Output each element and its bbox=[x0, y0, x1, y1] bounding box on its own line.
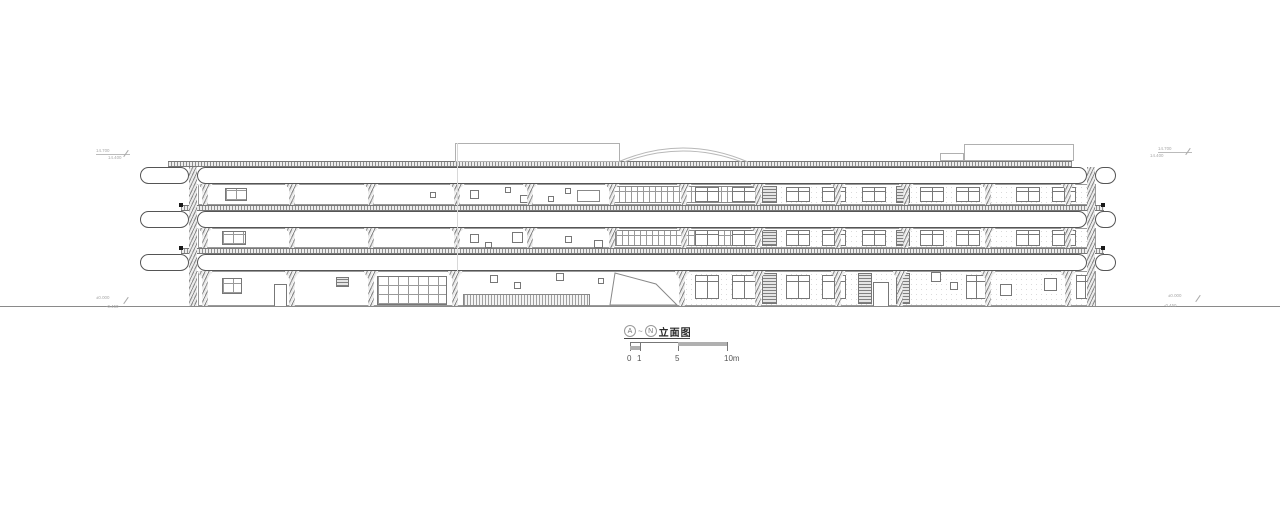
square-window bbox=[470, 234, 479, 243]
window bbox=[786, 275, 810, 299]
square-window bbox=[505, 187, 511, 193]
window bbox=[822, 187, 846, 202]
square-window bbox=[565, 236, 572, 243]
window bbox=[1052, 230, 1076, 246]
square-window bbox=[1044, 278, 1057, 291]
slide-structure bbox=[610, 272, 678, 306]
grid-window bbox=[222, 278, 242, 294]
grid-window bbox=[225, 188, 247, 201]
square-window bbox=[514, 282, 521, 289]
window bbox=[920, 187, 944, 202]
window bbox=[862, 187, 886, 202]
square-window bbox=[548, 196, 554, 202]
scale-bar-label: 0 bbox=[627, 354, 631, 363]
scale-bar-label: 1 bbox=[637, 354, 641, 363]
elevation-drawing-canvas: A ~ N 立面图 14.70014.40014.70014.400±0.000… bbox=[0, 0, 1280, 512]
level-marker-value: 14.700 bbox=[96, 148, 109, 153]
window bbox=[695, 230, 719, 246]
louver-panel bbox=[762, 230, 777, 246]
grid-bubble-n: N bbox=[645, 325, 657, 337]
square-window bbox=[931, 272, 941, 282]
louver-panel bbox=[762, 186, 777, 203]
window bbox=[822, 230, 846, 246]
level-marker-value: 14.400 bbox=[1150, 153, 1163, 158]
floor-band-1 bbox=[140, 211, 189, 228]
louver-fence bbox=[463, 294, 590, 306]
rooftop-box-right-step bbox=[940, 153, 964, 161]
floor-band-1 bbox=[1095, 211, 1116, 228]
slab-end-dot bbox=[1101, 203, 1105, 207]
square-window bbox=[950, 282, 958, 290]
drawing-title: 立面图 bbox=[659, 324, 692, 339]
grid-bubble-a: A bbox=[624, 325, 636, 337]
square-window bbox=[594, 240, 603, 248]
level-marker-value: -0.450 bbox=[106, 304, 118, 309]
window bbox=[956, 187, 980, 202]
floor-band-2 bbox=[1095, 254, 1116, 271]
window bbox=[1052, 187, 1076, 202]
window bbox=[1016, 230, 1040, 246]
level-marker-value: -0.450 bbox=[1164, 303, 1176, 308]
square-window bbox=[512, 232, 523, 243]
scale-bar-tick bbox=[727, 342, 728, 351]
grid-window bbox=[222, 231, 246, 245]
scale-bar-fill bbox=[630, 346, 640, 350]
window bbox=[786, 230, 810, 246]
square-window bbox=[430, 192, 436, 198]
square-window bbox=[1000, 284, 1012, 296]
scale-bar-label: 5 bbox=[675, 354, 679, 363]
louver-panel bbox=[858, 273, 872, 304]
joint-line bbox=[457, 143, 458, 272]
level-marker-value: ±0.000 bbox=[96, 295, 109, 300]
window bbox=[956, 230, 980, 246]
drawing-title-block: A ~ N 立面图 bbox=[624, 324, 692, 338]
louver-panel bbox=[762, 273, 777, 304]
slab-end-dot bbox=[1101, 246, 1105, 250]
level-marker-tick bbox=[123, 297, 128, 304]
window bbox=[966, 275, 986, 299]
level-marker-value: 14.400 bbox=[108, 155, 121, 160]
level-marker-value: ±0.000 bbox=[1168, 293, 1181, 298]
rooftop-box-right bbox=[964, 144, 1074, 161]
floor-band-0 bbox=[1095, 167, 1116, 184]
window bbox=[862, 230, 886, 246]
floor-band-2 bbox=[140, 254, 189, 271]
grid-window bbox=[377, 276, 447, 305]
scale-bar-label: 10m bbox=[724, 354, 740, 363]
window bbox=[695, 187, 719, 202]
square-window bbox=[598, 278, 604, 284]
scale-bar-fill bbox=[678, 342, 727, 346]
square-window bbox=[490, 275, 498, 283]
edge-column bbox=[1087, 167, 1095, 306]
slab-end-dot bbox=[179, 246, 183, 250]
title-underline bbox=[624, 338, 690, 339]
wall-opening bbox=[577, 190, 600, 202]
level-marker-tick bbox=[1195, 295, 1200, 302]
window bbox=[732, 230, 756, 246]
rooftop-box-left bbox=[455, 143, 620, 162]
slab-end-dot bbox=[179, 203, 183, 207]
door bbox=[873, 282, 889, 306]
roof-arch bbox=[616, 134, 750, 162]
square-window bbox=[556, 273, 564, 281]
door bbox=[274, 284, 287, 306]
level-marker-value: 14.700 bbox=[1158, 146, 1171, 151]
window bbox=[1016, 187, 1040, 202]
scale-bar-tick bbox=[640, 342, 641, 351]
window bbox=[822, 275, 846, 299]
floor-band-2 bbox=[197, 254, 1087, 271]
tilde-separator: ~ bbox=[638, 327, 643, 336]
window bbox=[786, 187, 810, 202]
window bbox=[920, 230, 944, 246]
square-window bbox=[470, 190, 479, 199]
edge-column bbox=[189, 167, 197, 306]
window bbox=[732, 275, 756, 299]
floor-band-1 bbox=[197, 211, 1087, 228]
floor-band-0 bbox=[197, 167, 1087, 184]
floor-band-0 bbox=[140, 167, 189, 184]
square-window bbox=[565, 188, 571, 194]
window bbox=[695, 275, 719, 299]
louver-panel bbox=[336, 277, 349, 287]
window bbox=[732, 187, 756, 202]
ground-line bbox=[0, 306, 1280, 307]
